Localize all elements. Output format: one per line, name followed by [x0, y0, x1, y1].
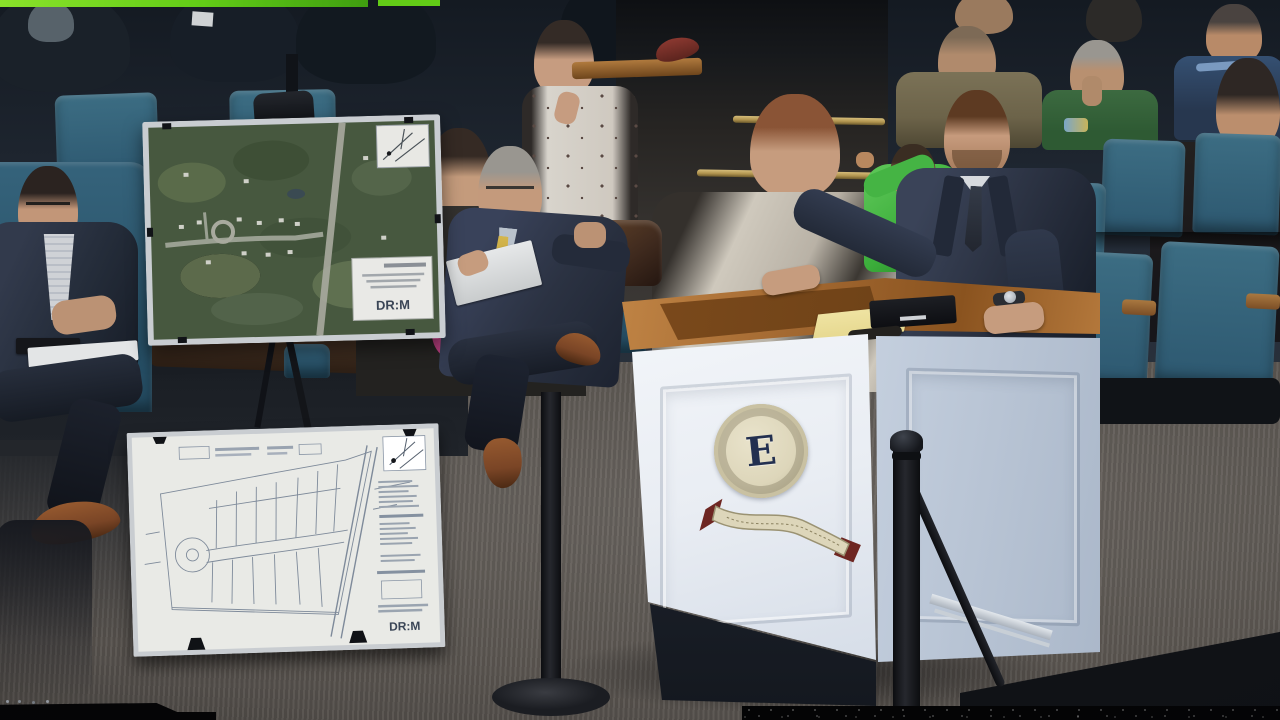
- caption-bar-left: [0, 703, 178, 720]
- left-man-glasses: [26, 202, 70, 205]
- video-glitch-line: [0, 0, 368, 7]
- sweater-badge: [1064, 118, 1088, 132]
- background-figure: [170, 0, 300, 82]
- caption-bar-right: [742, 706, 1280, 720]
- plan-inset-map: [383, 436, 426, 471]
- aerial-firm-logo: DR:M: [376, 297, 410, 313]
- auditorium-chair: [1100, 139, 1185, 238]
- left-man-lower-dark: [0, 520, 92, 700]
- stanchion-post: [541, 392, 561, 692]
- stanchion-base: [492, 678, 610, 716]
- aerial-map-board: DR:M: [142, 114, 446, 346]
- podium: E: [618, 276, 1102, 710]
- auburn-woman-head: [750, 94, 840, 198]
- plan-firm-logo: DR:M: [389, 619, 421, 634]
- green-child-hand: [856, 152, 874, 168]
- site-plan-board: DR:M: [127, 423, 446, 657]
- stanchion-collar: [892, 452, 921, 460]
- green-sweater-man-hand: [1082, 76, 1102, 106]
- meeting-room-photo: DR:M: [0, 0, 1280, 720]
- podium-right-panel: [906, 368, 1080, 627]
- auditorium-chair: [1192, 133, 1280, 236]
- background-figure: [296, 0, 436, 84]
- background-figure: [28, 2, 74, 42]
- laptop: [869, 295, 957, 329]
- chair-armrest: [1122, 299, 1157, 316]
- caption-dots-left: [6, 700, 9, 703]
- caption-bar-left-tail: [176, 712, 216, 720]
- chair-armrest: [1246, 293, 1280, 310]
- navy-jacket-man-head: [1206, 4, 1262, 64]
- badge-card: [192, 11, 214, 26]
- stanchion-post: [893, 446, 920, 710]
- older-man-hand: [574, 222, 606, 248]
- stanchion-cap: [890, 430, 923, 452]
- floral-woman-head: [534, 20, 594, 96]
- video-glitch-line: [378, 0, 440, 6]
- aerial-inset-map: [376, 124, 429, 167]
- background-person-head: [1086, 0, 1142, 42]
- aerial-title-block: DR:M: [352, 256, 434, 320]
- speaker-watch-face: [1004, 291, 1016, 303]
- older-man-glasses: [486, 186, 534, 189]
- seal-letter: E: [743, 426, 778, 476]
- auditorium-chair: [1154, 241, 1279, 389]
